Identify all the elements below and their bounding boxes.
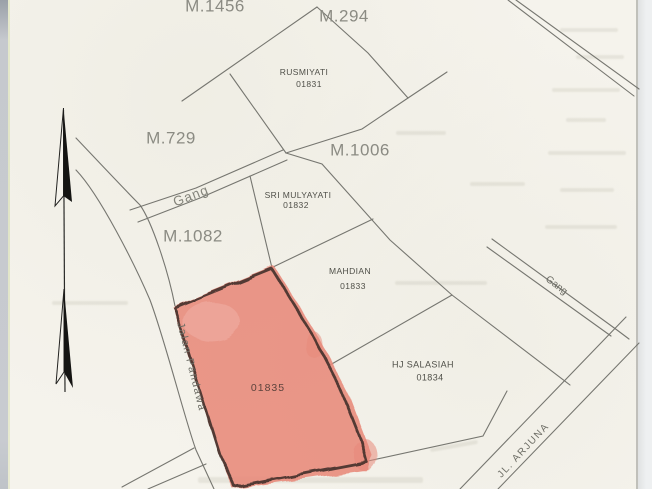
north-arrow-icon <box>55 108 73 392</box>
scanned-map-page: M.1456 M.294 M.729 M.1006 M.1082 RUSMIYA… <box>0 0 652 489</box>
owner-number-01831: 01831 <box>296 80 322 89</box>
highlighted-parcel-number: 01835 <box>251 383 285 394</box>
parcel-label-m729: M.729 <box>146 130 196 147</box>
highlighted-parcel-01835 <box>173 266 377 489</box>
owner-number-01834: 01834 <box>416 374 443 383</box>
owner-number-01833: 01833 <box>340 282 366 291</box>
parcel-label-m294: M.294 <box>319 8 369 25</box>
owner-name-hj-salasiah: HJ SALASIAH <box>392 361 454 370</box>
owner-name-sri-mulyayati: SRI MULYAYATI <box>265 191 332 200</box>
roads <box>76 0 639 489</box>
parcel-label-m1456: M.1456 <box>185 0 245 15</box>
parcel-label-m1006: M.1006 <box>330 142 390 159</box>
owner-name-rusmiyati: RUSMIYATI <box>280 68 329 77</box>
owner-number-01832: 01832 <box>283 201 309 210</box>
parcel-label-m1082: M.1082 <box>163 228 223 245</box>
owner-name-mahdian: MAHDIAN <box>329 267 371 276</box>
